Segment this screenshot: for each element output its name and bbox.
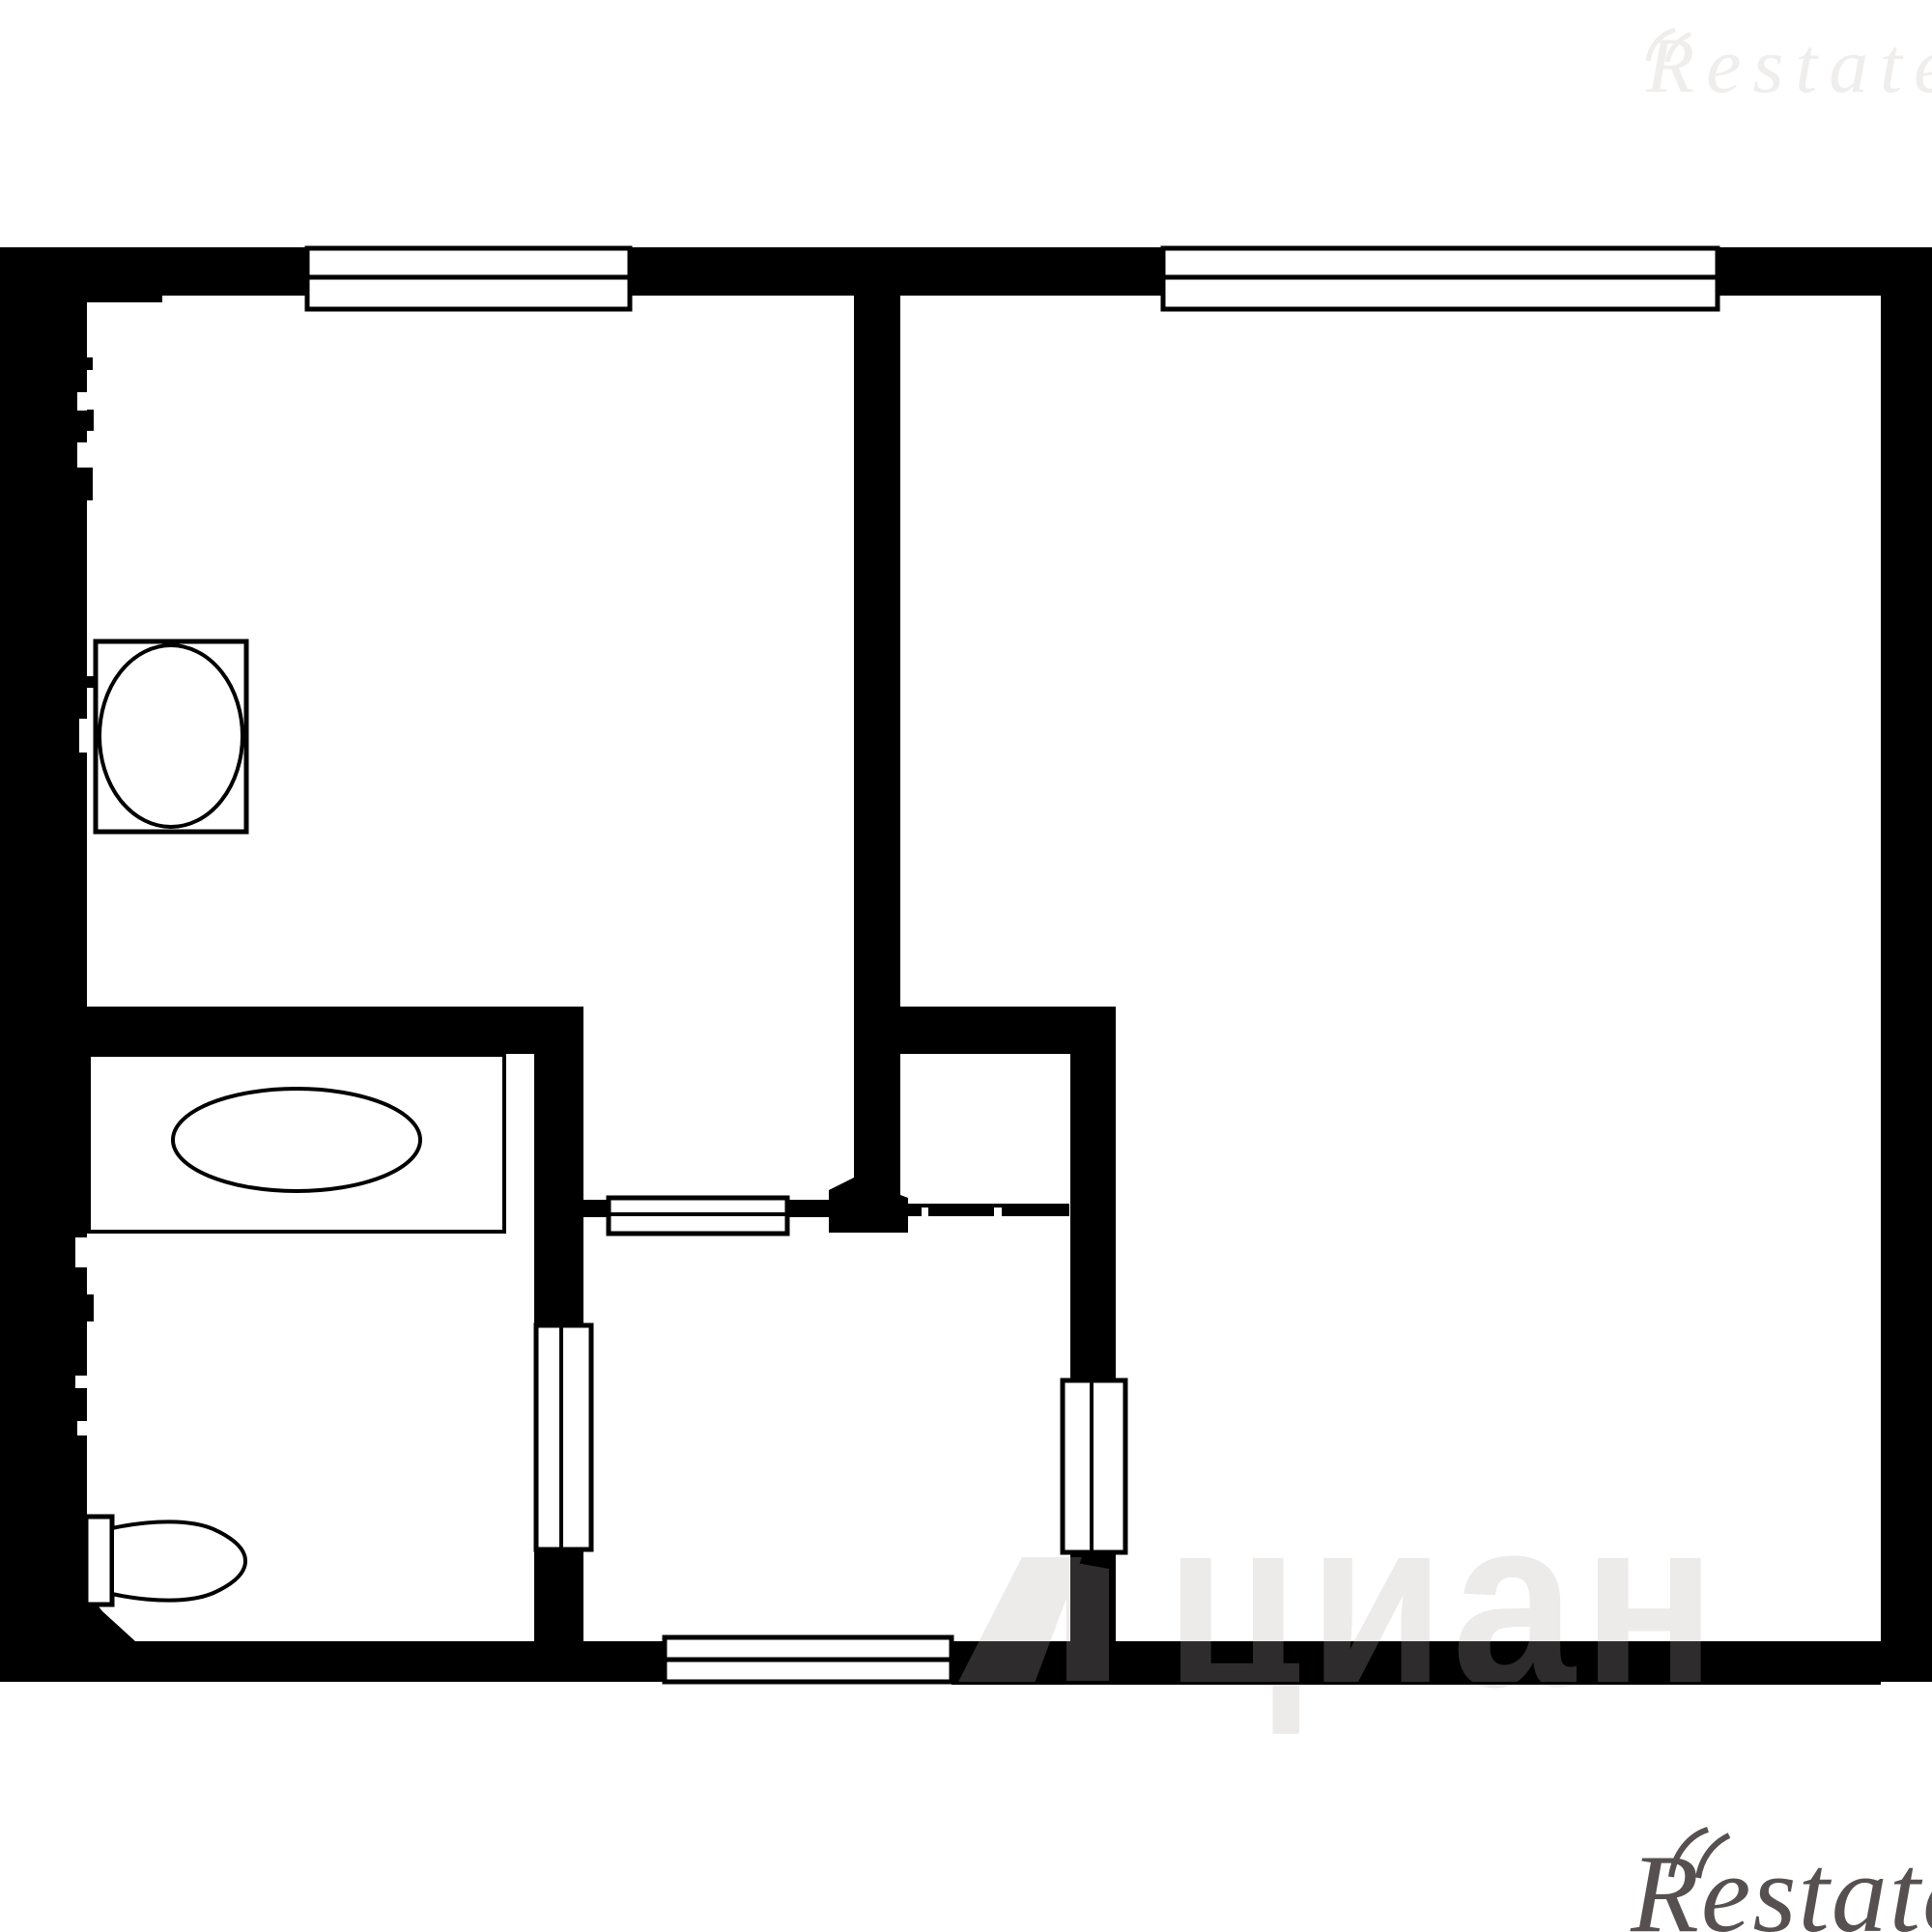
svg-text:Restate: Restate [1630, 1833, 1932, 1932]
svg-text:циан: циан [1165, 1467, 1723, 1737]
